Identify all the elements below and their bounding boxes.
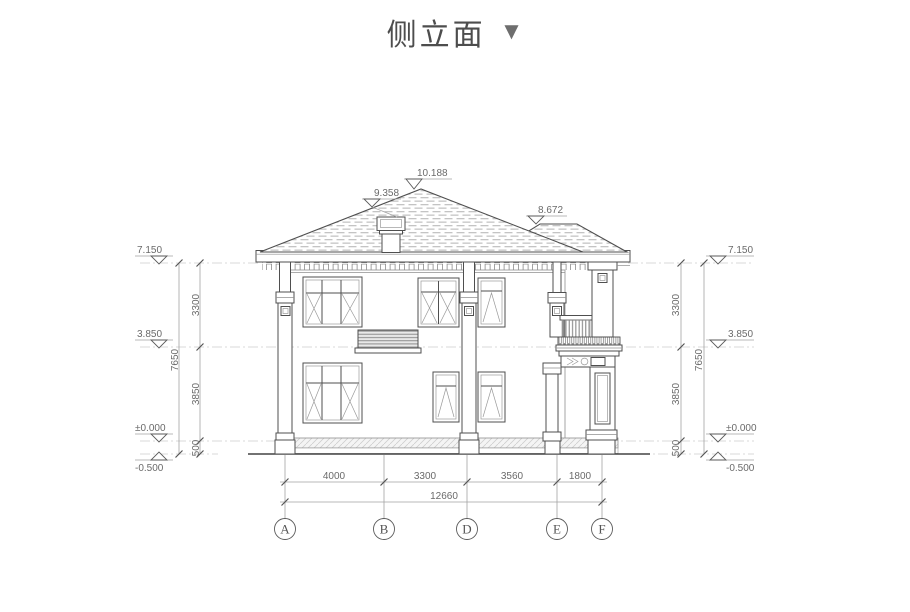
dim-right-7650: 7650 xyxy=(694,348,705,371)
bottom-dims: 4000 3300 3560 1800 12660 xyxy=(280,455,607,519)
markers-left: 7.150 3.850 ±0.000 -0.500 xyxy=(135,245,173,474)
dim-left-3300: 3300 xyxy=(191,293,202,316)
grid-bubble-f: F xyxy=(598,522,605,537)
marker-porch-roof: 8.672 xyxy=(526,205,567,224)
marker-ground-left: -0.500 xyxy=(135,463,164,474)
dim-right-500: 500 xyxy=(671,439,682,456)
balcony-railing xyxy=(560,316,592,338)
window-2f-middle xyxy=(418,278,459,327)
dim-3560: 3560 xyxy=(501,471,524,482)
vertical-dims-right: 3300 3850 500 7650 xyxy=(671,260,708,458)
marker-ground-right: -0.500 xyxy=(726,463,755,474)
window-2f-narrow xyxy=(478,278,505,327)
marker-porch-roof-value: 8.672 xyxy=(538,205,563,216)
marker-eave-right: 7.150 xyxy=(728,245,753,256)
dim-right-3850: 3850 xyxy=(671,382,682,405)
marker-zero-left: ±0.000 xyxy=(135,423,166,434)
dim-1800: 1800 xyxy=(569,471,592,482)
balcony-slab-cornice xyxy=(556,337,622,367)
page: 侧立面 ▼ xyxy=(0,0,910,612)
dim-left-7650: 7650 xyxy=(170,348,181,371)
grid-bubbles: A B D E F xyxy=(275,519,613,540)
marker-eave-left: 7.150 xyxy=(137,245,162,256)
plinth-band xyxy=(276,438,618,454)
dim-left-500: 500 xyxy=(191,439,202,456)
window-2f-wide xyxy=(303,277,362,327)
window-1f-middle xyxy=(433,372,459,422)
markers-right: 7.150 3.850 ±0.000 -0.500 xyxy=(706,245,757,474)
marker-ridge-value: 10.188 xyxy=(417,168,448,179)
dim-12660: 12660 xyxy=(430,491,458,502)
window-1f-wide xyxy=(303,363,362,423)
marker-ridge: 10.188 xyxy=(404,168,452,189)
porch-column-e xyxy=(543,363,561,454)
marker-left-slope-value: 9.358 xyxy=(374,188,399,199)
grid-bubble-d: D xyxy=(462,522,471,537)
dim-3300: 3300 xyxy=(414,471,437,482)
grid-bubble-a: A xyxy=(280,522,290,537)
main-eave xyxy=(256,251,630,271)
marker-floor2-left: 3.850 xyxy=(137,329,162,340)
louver-vent xyxy=(355,330,421,353)
grid-bubble-b: B xyxy=(380,522,389,537)
vertical-dims-left: 3300 3850 500 7650 xyxy=(170,260,204,458)
grid-bubble-e: E xyxy=(553,522,561,537)
dim-4000: 4000 xyxy=(323,471,346,482)
window-1f-narrow xyxy=(478,372,505,422)
marker-zero-right: ±0.000 xyxy=(726,423,757,434)
dim-right-3300: 3300 xyxy=(671,293,682,316)
marker-floor2-right: 3.850 xyxy=(728,329,753,340)
elevation-drawing: 10.188 9.358 8.672 7.150 3.850 ±0.000 xyxy=(0,0,910,612)
dim-left-3850: 3850 xyxy=(191,382,202,405)
